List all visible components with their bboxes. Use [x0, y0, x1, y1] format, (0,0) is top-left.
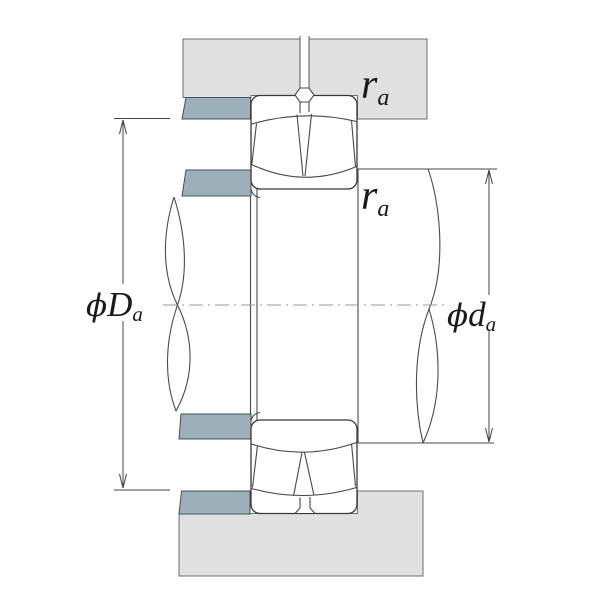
oil-slot: [300, 36, 309, 94]
label-ra-shaft: ra: [361, 173, 389, 222]
label-phi-Da: ϕDa: [86, 285, 143, 326]
housing-shoulder-bottom-left: [179, 491, 250, 514]
bearing-section-top: [251, 88, 357, 198]
bearing-section-bottom: [251, 413, 357, 514]
shaft-break-curve-right: [416, 169, 439, 443]
break-lens-left: [165, 197, 190, 411]
bearing-mounting-diagram: ra ra ϕDa ϕda: [0, 0, 600, 600]
oil-hole-top: [300, 36, 309, 94]
housing-shoulder-top-left: [182, 98, 251, 120]
label-phi-da: ϕda: [447, 295, 496, 336]
dimension-da: [486, 170, 493, 442]
shaft-shoulder-top-left: [182, 170, 251, 196]
diagram-canvas: ra ra ϕDa ϕda: [0, 0, 600, 600]
abutment-shoulders: [179, 98, 251, 515]
bearing-top-outline: [251, 96, 357, 190]
chamfer-fillet-top: [251, 189, 260, 198]
shaft-shoulder-bottom-left: [179, 414, 251, 439]
oil-hole-hex: [295, 88, 314, 102]
